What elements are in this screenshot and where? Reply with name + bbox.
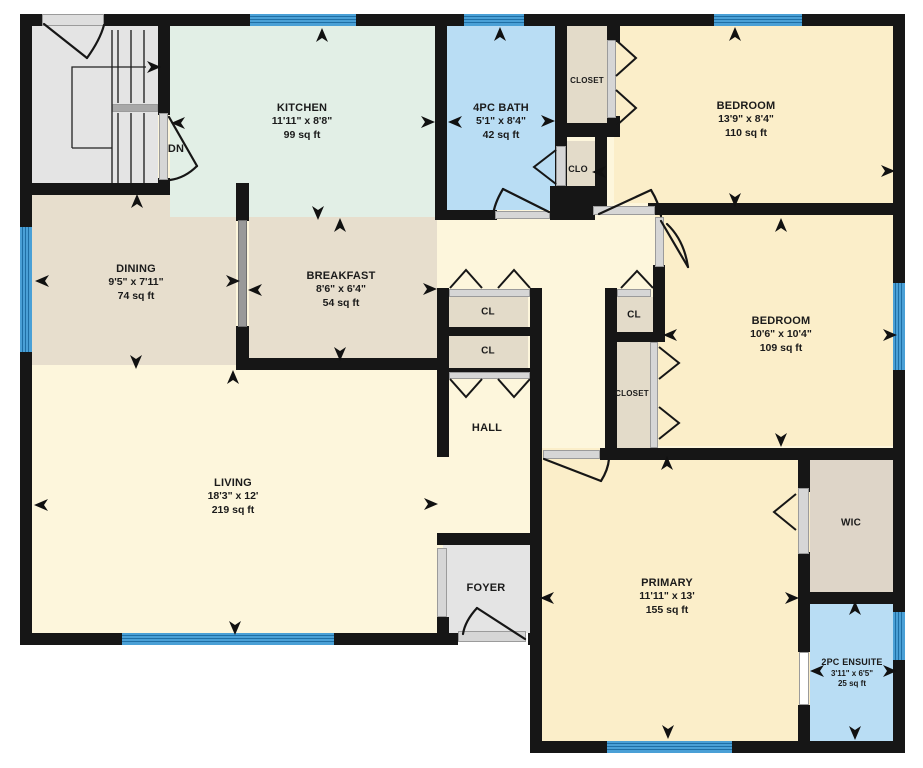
closet-door-track xyxy=(798,488,809,554)
wall xyxy=(20,183,170,195)
wall xyxy=(435,210,497,220)
wall xyxy=(437,617,449,635)
wall xyxy=(437,533,542,545)
wall xyxy=(437,288,449,457)
door-threshold xyxy=(593,206,655,215)
wall xyxy=(798,552,810,596)
wall xyxy=(607,116,620,137)
room-label-dining: DINING9'5" x 7'11"74 sq ft xyxy=(108,262,163,304)
window xyxy=(893,612,905,660)
closet-door-track xyxy=(650,342,658,448)
wall xyxy=(655,203,893,215)
entry-door-leaf xyxy=(458,631,526,642)
room-label-breakfast: BREAKFAST8'6" x 6'4"54 sq ft xyxy=(306,269,375,311)
door-threshold xyxy=(159,113,168,180)
closet-door-track xyxy=(607,40,616,118)
window xyxy=(464,14,524,26)
door-threshold xyxy=(42,14,104,26)
room-label-wic: WIC xyxy=(841,517,861,530)
closet-door-track xyxy=(449,372,530,379)
wall xyxy=(600,448,893,460)
stair-landing xyxy=(112,104,158,112)
wall xyxy=(236,183,249,221)
room-label-closet-bed2: CLOSET xyxy=(615,389,649,399)
door-threshold xyxy=(543,450,600,459)
window xyxy=(20,227,32,352)
wall xyxy=(605,288,617,460)
room-label-ensuite: 2PC ENSUITE3'11" x 6'5"25 sq ft xyxy=(821,657,882,689)
room-label-closet-top: CLOSET xyxy=(570,76,604,86)
wall xyxy=(550,186,595,220)
room-label-primary: PRIMARY11'11" x 13'155 sq ft xyxy=(639,576,695,618)
stair-direction-label: DN xyxy=(168,142,184,156)
window xyxy=(250,14,356,26)
wall xyxy=(798,604,810,652)
room-label-cl-hall-1: CL xyxy=(481,306,495,319)
door-threshold xyxy=(495,211,550,219)
room-label-bedroom1: BEDROOM13'9" x 8'4"110 sq ft xyxy=(717,99,776,141)
room-label-clo: CLO xyxy=(568,164,588,176)
pocket-door xyxy=(799,652,809,705)
window xyxy=(607,741,732,753)
wall-jamb xyxy=(437,548,447,617)
closet-door-track xyxy=(449,289,530,297)
wall xyxy=(158,26,170,115)
room-label-hall: HALL xyxy=(472,421,502,435)
room-label-cl-hall-2: CL xyxy=(481,345,495,358)
room-label-kitchen: KITCHEN11'11" x 8'8"99 sq ft xyxy=(272,101,333,143)
wall xyxy=(435,26,447,220)
closet-door-track xyxy=(556,146,566,186)
floor-plan: KITCHEN11'11" x 8'8"99 sq ft 4PC BATH5'1… xyxy=(0,0,923,768)
closet-door-track xyxy=(617,289,651,297)
wall xyxy=(530,288,542,753)
wall xyxy=(449,327,530,336)
wall xyxy=(798,705,810,753)
wall xyxy=(653,288,665,342)
room-label-cl-bed2: CL xyxy=(627,309,641,322)
wall xyxy=(236,358,449,370)
wall xyxy=(798,592,893,604)
wall xyxy=(798,448,810,492)
wall xyxy=(653,265,665,293)
wall xyxy=(595,135,607,207)
half-wall-divider xyxy=(238,220,247,327)
window xyxy=(893,283,905,370)
room-label-living: LIVING18'3" x 12'219 sq ft xyxy=(208,476,259,518)
room-label-foyer: FOYER xyxy=(467,581,506,595)
window xyxy=(122,633,334,645)
room-label-bath: 4PC BATH5'1" x 8'4"42 sq ft xyxy=(473,101,529,143)
door-threshold xyxy=(655,217,664,267)
room-label-bedroom2: BEDROOM10'6" x 10'4"109 sq ft xyxy=(750,314,812,356)
window xyxy=(714,14,802,26)
